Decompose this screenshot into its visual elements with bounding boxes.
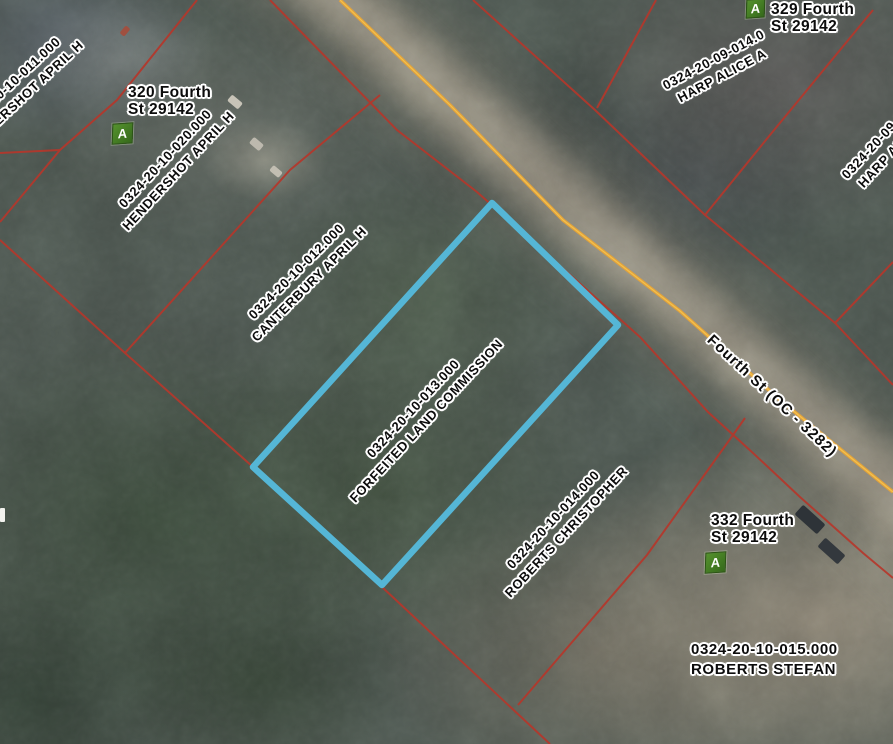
- parcel-boundary-line: [597, 0, 656, 108]
- address-label-320: 320 Fourth St 29142: [128, 84, 211, 118]
- parcel-label-roberts-015: 0324-20-10-015.000 ROBERTS STEFAN: [691, 640, 838, 680]
- parcel-boundary-line: [835, 262, 893, 323]
- address-point-marker[interactable]: A: [705, 551, 727, 574]
- address-line1: 320 Fourth: [128, 84, 211, 101]
- address-point-marker[interactable]: A: [746, 0, 766, 19]
- clipped-label-fragment: [0, 508, 5, 522]
- parcel-number: 0324-20-10-015.000: [691, 640, 838, 660]
- marker-letter: A: [711, 555, 721, 571]
- address-label-332: 332 Fourth St 29142: [711, 512, 794, 546]
- address-point-marker[interactable]: A: [112, 122, 134, 145]
- parcel-boundary-line: [0, 150, 60, 153]
- address-line2: St 29142: [711, 529, 794, 546]
- address-line2: St 29142: [771, 18, 854, 35]
- address-line1: 329 Fourth: [771, 1, 854, 18]
- address-line2: St 29142: [128, 101, 211, 118]
- marker-letter: A: [118, 126, 128, 142]
- address-line1: 332 Fourth: [711, 512, 794, 529]
- parcel-owner: ROBERTS STEFAN: [691, 660, 838, 680]
- marker-letter: A: [751, 1, 761, 17]
- address-label-329: 329 Fourth St 29142: [771, 1, 854, 35]
- aerial-parcel-map[interactable]: 0324-20-10-011.000 HENDERSHOT APRIL H 03…: [0, 0, 893, 744]
